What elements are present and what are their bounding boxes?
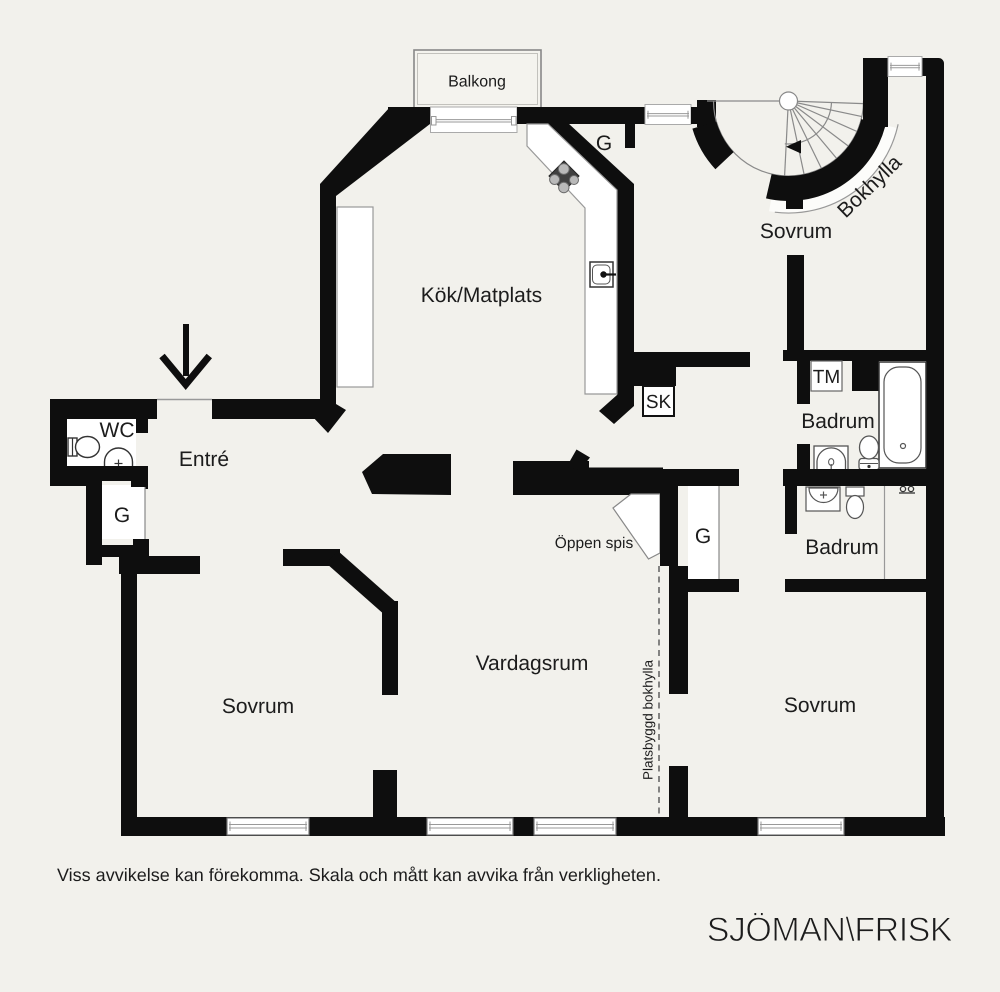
svg-text:Sovrum: Sovrum (760, 220, 832, 243)
svg-text:G: G (114, 504, 130, 527)
svg-text:G: G (596, 132, 612, 155)
svg-text:Vardagsrum: Vardagsrum (476, 652, 589, 675)
svg-text:Kök/Matplats: Kök/Matplats (421, 284, 542, 307)
svg-text:WC: WC (100, 419, 135, 442)
svg-text:G: G (695, 525, 711, 548)
svg-text:SK: SK (646, 392, 672, 413)
svg-text:Badrum: Badrum (805, 536, 879, 559)
svg-text:SJÖMAN\FRISK: SJÖMAN\FRISK (707, 911, 953, 949)
svg-text:Entré: Entré (179, 448, 229, 471)
svg-text:Sovrum: Sovrum (222, 695, 294, 718)
svg-text:Balkong: Balkong (448, 74, 506, 91)
svg-text:Viss avvikelse kan förekomma.: Viss avvikelse kan förekomma. Skala och … (57, 865, 661, 885)
svg-text:Platsbyggd bokhylla: Platsbyggd bokhylla (641, 659, 656, 780)
svg-text:Sovrum: Sovrum (784, 694, 856, 717)
svg-text:Badrum: Badrum (801, 410, 875, 433)
svg-text:Öppen spis: Öppen spis (555, 535, 634, 552)
svg-text:TM: TM (813, 367, 840, 388)
